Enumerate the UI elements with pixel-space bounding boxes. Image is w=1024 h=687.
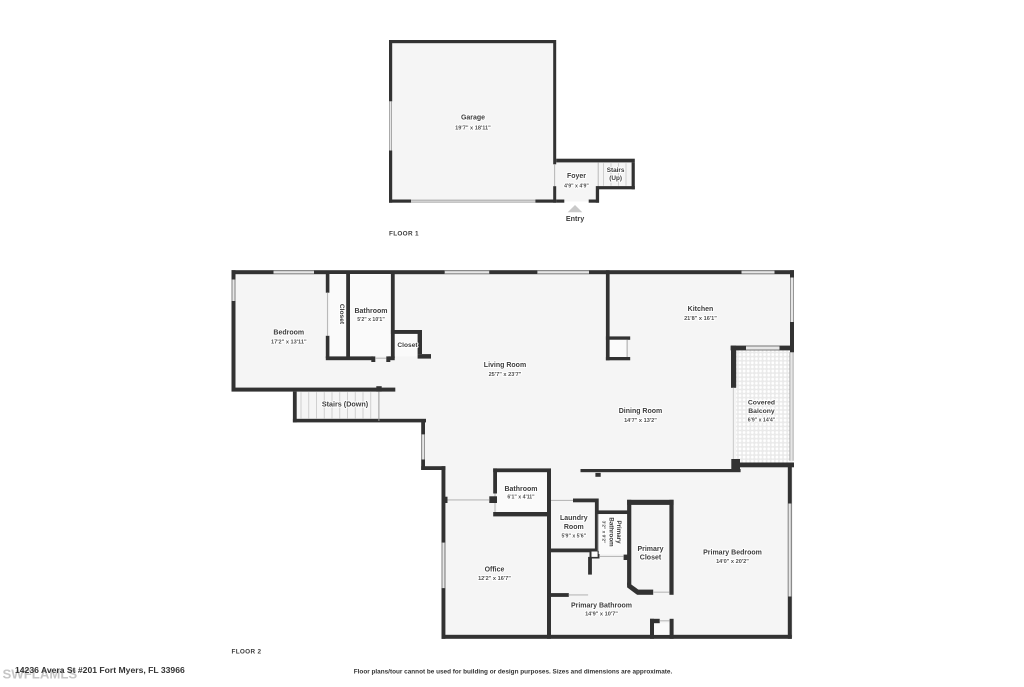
svg-text:Garage: Garage	[461, 115, 485, 122]
svg-text:Dining Room: Dining Room	[619, 408, 663, 415]
svg-text:Primary: Primary	[637, 546, 663, 553]
svg-text:Closet: Closet	[397, 342, 418, 349]
svg-text:6'9" x 14'4": 6'9" x 14'4"	[748, 418, 776, 424]
svg-text:Entry: Entry	[566, 214, 584, 223]
svg-text:19'7" x 18'11": 19'7" x 18'11"	[455, 126, 491, 132]
svg-text:Closet: Closet	[640, 555, 662, 562]
svg-text:(Up): (Up)	[609, 175, 622, 182]
svg-text:14'9" x 10'7": 14'9" x 10'7"	[585, 612, 618, 618]
svg-text:5'9" x 5'6": 5'9" x 5'6"	[561, 534, 586, 540]
svg-text:4'9" x 4'9": 4'9" x 4'9"	[564, 184, 589, 190]
svg-text:Laundry: Laundry	[560, 515, 588, 522]
svg-text:Primary Bathroom: Primary Bathroom	[571, 603, 632, 610]
svg-text:21'8" x 16'1": 21'8" x 16'1"	[684, 316, 717, 322]
svg-text:25'7" x 23'7": 25'7" x 23'7"	[489, 372, 522, 378]
svg-text:Balcony: Balcony	[748, 408, 775, 415]
svg-text:FLOOR 2: FLOOR 2	[232, 649, 262, 656]
svg-text:5'2" x 10'1": 5'2" x 10'1"	[357, 317, 385, 323]
svg-text:Stairs (Down): Stairs (Down)	[322, 400, 369, 409]
svg-text:Covered: Covered	[748, 400, 775, 407]
svg-text:Bathroom: Bathroom	[608, 517, 615, 547]
svg-text:14236 Avera St #201 Fort Myers: 14236 Avera St #201 Fort Myers, FL 33966	[15, 665, 185, 675]
svg-text:Room: Room	[564, 524, 584, 531]
svg-text:6'1" x 4'11": 6'1" x 4'11"	[507, 494, 535, 500]
svg-text:Closet: Closet	[338, 304, 345, 325]
svg-text:Office: Office	[485, 567, 505, 574]
svg-text:17'2" x 13'11": 17'2" x 13'11"	[271, 340, 307, 346]
svg-text:Floor plans/tour cannot be use: Floor plans/tour cannot be used for buil…	[354, 669, 673, 676]
svg-text:14'7" x 13'2": 14'7" x 13'2"	[624, 418, 657, 424]
svg-text:Living Room: Living Room	[484, 362, 526, 369]
svg-text:FLOOR 1: FLOOR 1	[389, 231, 419, 238]
svg-text:Foyer: Foyer	[567, 173, 586, 180]
svg-text:3'2" x 9'2": 3'2" x 9'2"	[601, 521, 607, 544]
svg-text:Stairs: Stairs	[607, 167, 625, 174]
svg-text:Bedroom: Bedroom	[273, 330, 304, 337]
svg-text:Bathroom: Bathroom	[504, 486, 537, 493]
svg-text:14'0" x 20'2": 14'0" x 20'2"	[716, 559, 749, 565]
svg-text:Primary: Primary	[615, 520, 622, 544]
svg-text:12'2" x 16'7": 12'2" x 16'7"	[478, 576, 511, 582]
svg-text:Primary Bedroom: Primary Bedroom	[703, 550, 762, 557]
svg-text:Bathroom: Bathroom	[354, 308, 387, 315]
svg-text:Kitchen: Kitchen	[688, 306, 714, 313]
